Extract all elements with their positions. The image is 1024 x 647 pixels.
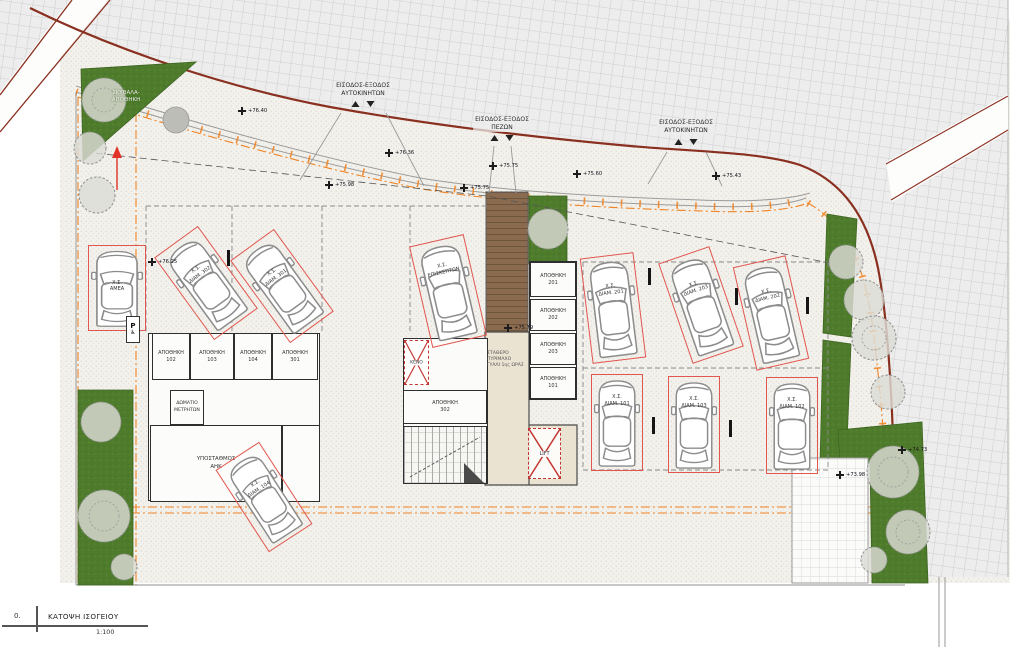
benchmark-icon [836,471,844,479]
storage-name: ΑΠΟΘΗΚΗ [540,308,566,315]
pedestrian-entrance-label: ΕΙΣΟΔΟΣ-ΕΞΟΔΟΣ ΠΕΖΩΝ [473,116,531,132]
lift-shaft: LIFT [528,428,561,479]
benchmark-icon [238,107,246,115]
title-underline [2,625,148,627]
storage-room-101: ΑΠΟΘΗΚΗ 101 [530,367,576,399]
car-entrance-label-right: ΕΙΣΟΔΟΣ-ΕΞΟΔΟΣ ΑΥΤΟΚΙΝΗΤΩΝ [657,119,715,135]
parking-label: Χ.Σ.ΑΜΕΑ [89,280,145,294]
storage-number: 202 [548,315,558,322]
storage-name: ΑΠΟΘΗΚΗ [540,273,566,280]
storage-room-302: ΑΠΟΘΗΚΗ 302 [403,390,487,424]
wheelchair-icon: ♿ [130,330,135,336]
benchmark-icon [460,184,468,192]
car-icon [583,255,643,360]
site-plan-page: ΑΠΟΘΗΚΗ 102 ΑΠΟΘΗΚΗ 103 ΑΠΟΘΗΚΗ 104 ΑΠΟΘ… [0,0,1024,647]
benchmark-icon [898,446,906,454]
entry-exit-arrows-icon [675,139,698,145]
car-icon [671,379,717,470]
storage-number: 203 [548,349,558,356]
spot-level: +74.73 [898,446,927,454]
storage-number: 104 [248,357,258,364]
void-shaft: ΚΕΝΟ [404,340,429,385]
storage-number: 201 [548,280,558,287]
benchmark-icon [148,258,156,266]
spot-level: +75.79 [504,324,533,332]
garbage-store-label: ΣΚΥΒΑΛΑ- ΑΠΟΘΗΚΗ [112,90,140,104]
arrow-up-icon [352,101,360,107]
storage-name: ΑΠΟΘΗΚΗ [282,350,308,357]
storage-room-202: ΑΠΟΘΗΚΗ 202 [530,299,576,331]
lift-label: LIFT [538,451,550,457]
storage-name: ΑΠΟΘΗΚΗ [540,376,566,383]
parking-label: Χ.Σ.ΔΙΑΜ. 103 [669,396,719,410]
spot-level: +76.25 [148,258,177,266]
staircase [403,426,487,484]
benchmark-icon [573,170,581,178]
benchmark-icon [385,149,393,157]
room-label: ΜΕΤΡΗΤΩΝ [174,408,200,414]
storage-name: ΑΠΟΘΗΚΗ [240,350,266,357]
arrow-up-icon [675,139,683,145]
benchmark-icon [712,172,720,180]
spot-level: +75.60 [573,170,602,178]
spot-level: +75.98 [325,181,354,189]
arrow-down-icon [690,139,698,145]
void-label: ΚΕΝΟ [409,360,424,365]
storage-name: ΑΠΟΘΗΚΗ [199,350,225,357]
storage-room-102: ΑΠΟΘΗΚΗ 102 [152,333,190,380]
storage-room-103: ΑΠΟΘΗΚΗ 103 [190,333,234,380]
fire-glass-note: ΣΤΑΘΕΡΟ ΠΥΡΙΜΑΧΟ ΓΥΑΛΙ 1ης ΩΡΑΣ [487,351,527,369]
storage-room-104: ΑΠΟΘΗΚΗ 104 [234,333,272,380]
benchmark-icon [325,181,333,189]
arrow-down-icon [506,135,514,141]
storage-number: 302 [440,407,450,414]
storage-name: ΑΠΟΘΗΚΗ [432,400,458,407]
meter-room: ΔΩΜΑΤΙΟ ΜΕΤΡΗΤΩΝ [170,390,204,425]
storage-number: 102 [166,357,176,364]
spot-level: +73.98 [836,471,865,479]
stair-arrow [404,427,488,485]
entry-exit-arrows-icon [491,135,514,141]
drawing-title: ΚΑΤΟΨΗ ΙΣΟΓΕΙΟΥ [48,612,119,621]
car-entrance-label-left: ΕΙΣΟΔΟΣ-ΕΞΟΔΟΣ ΑΥΤΟΚΙΝΗΤΩΝ [334,82,392,98]
spot-level: +76.40 [238,107,267,115]
car-icon [769,380,815,471]
storage-number: 301 [290,357,300,364]
storage-name: ΑΠΟΘΗΚΗ [540,342,566,349]
parking-label: Χ.Σ.ΔΙΑΜ. 101 [592,394,642,408]
storage-room-203: ΑΠΟΘΗΚΗ 203 [530,333,576,365]
spot-level: +76.36 [385,149,414,157]
parking-spot-101: Χ.Σ.ΔΙΑΜ. 101 [591,374,643,471]
drawing-scale: 1:100 [96,628,114,636]
title-divider [36,606,38,632]
storage-room-201: ΑΠΟΘΗΚΗ 201 [530,262,576,297]
benchmark-icon [504,324,512,332]
storage-name: ΑΠΟΘΗΚΗ [158,350,184,357]
spot-level: +75.75 [460,184,489,192]
drawing-index: 0. [14,612,21,620]
arrow-down-icon [367,101,375,107]
car-icon [594,377,640,468]
storage-number: 101 [548,383,558,390]
parking-spot-102: Χ.Σ.ΔΙΑΜ. 102 [766,377,818,474]
storage-room-301: ΑΠΟΘΗΚΗ 301 [272,333,318,380]
arrow-up-icon [491,135,499,141]
title-block: 0. ΚΑΤΟΨΗ ΙΣΟΓΕΙΟΥ 1:100 [0,604,170,644]
spot-level: +75.75 [489,162,518,170]
spot-level: +75.43 [712,172,741,180]
storage-number: 103 [207,357,217,364]
parking-label: Χ.Σ.ΔΙΑΜ. 102 [767,397,817,411]
accessible-parking-sign: P ♿ [126,316,140,343]
entry-exit-arrows-icon [352,101,375,107]
benchmark-icon [489,162,497,170]
parking-spot-103: Χ.Σ.ΔΙΑΜ. 103 [668,376,720,473]
